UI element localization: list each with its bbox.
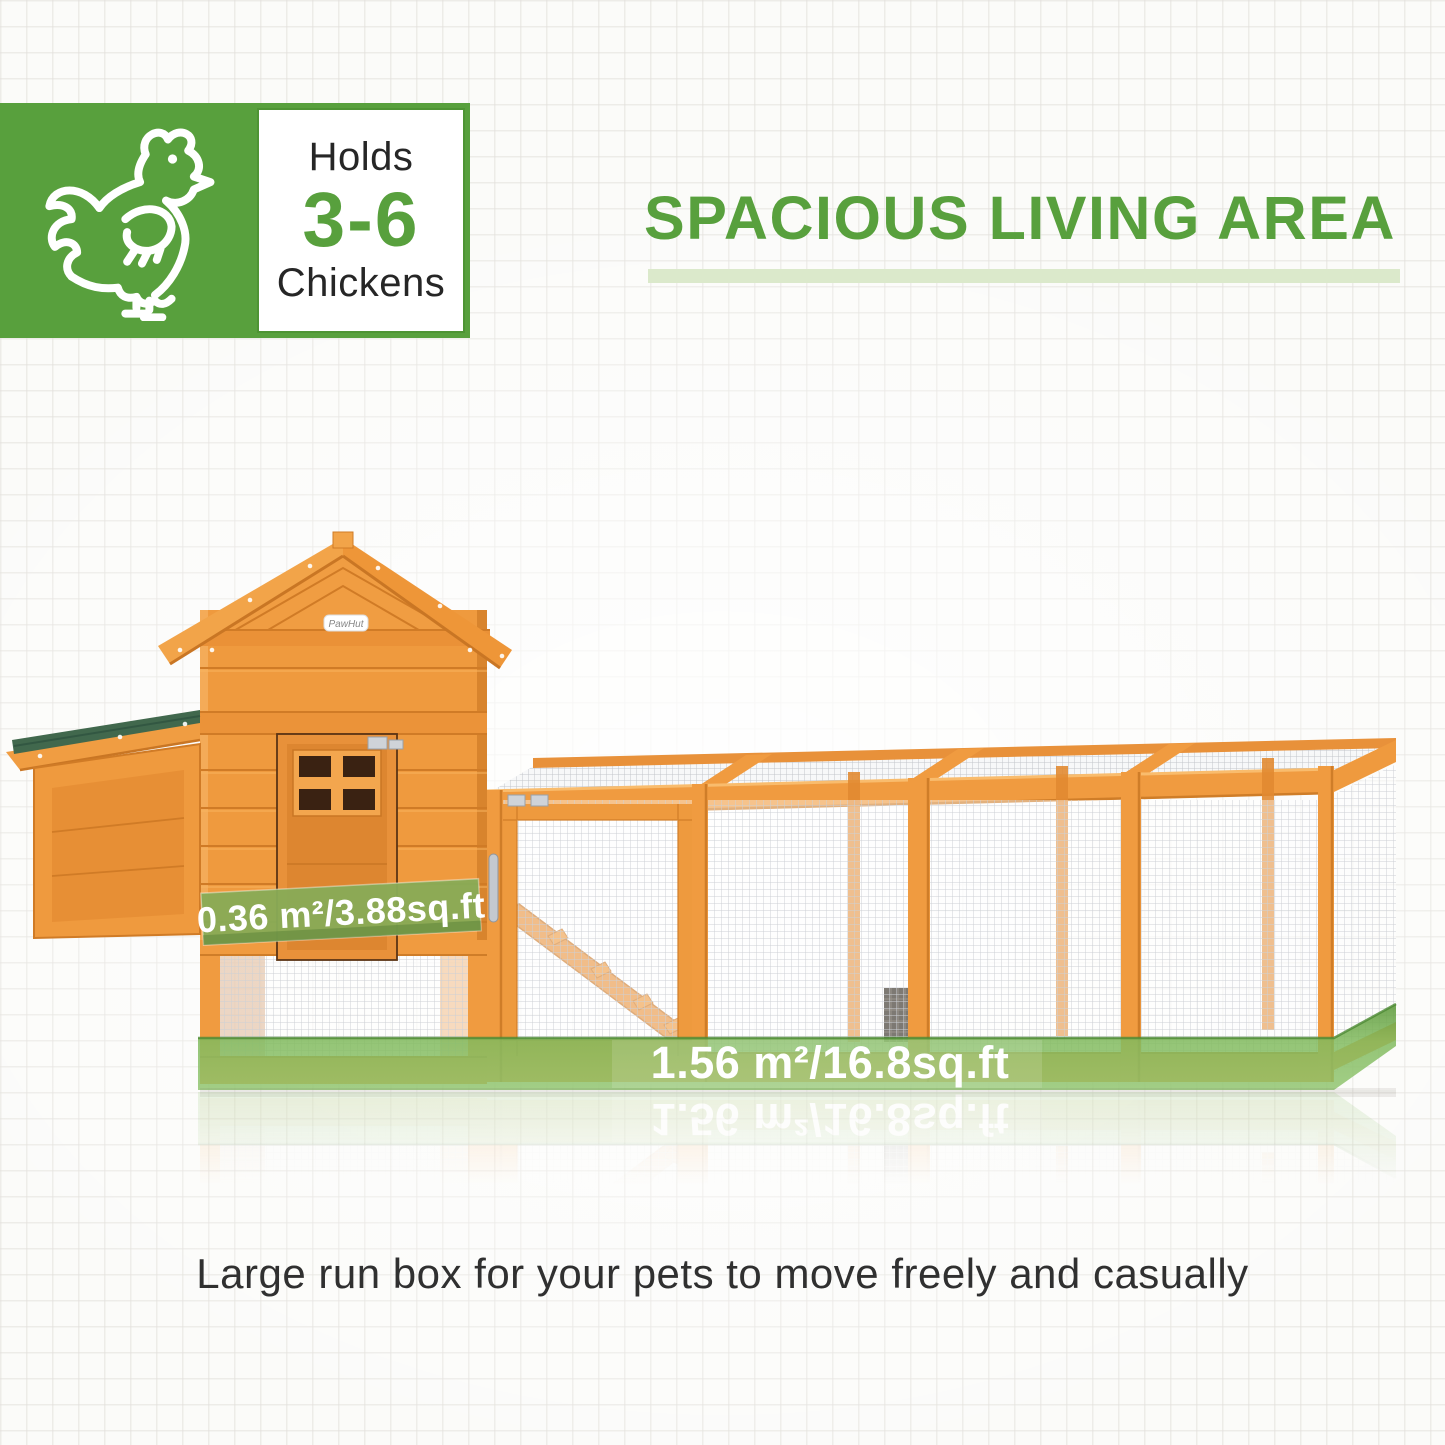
run-area-label: 1.56 m²/16.8sq.ft: [651, 1037, 1010, 1088]
door-window: [293, 750, 381, 816]
nest-box: [6, 710, 200, 938]
door-latch-icon: [368, 737, 387, 749]
chicken-run: [487, 738, 1396, 1082]
product-infographic: Holds 3-6 Chickens SPACIOUS LIVING AREA: [0, 0, 1445, 1445]
caption: Large run box for your pets to move free…: [0, 1250, 1445, 1298]
run-door-hinge-icon: [531, 795, 548, 806]
coop-illustration: PawHut: [0, 0, 1445, 1445]
chicken-coop-house: PawHut: [6, 532, 512, 1084]
brand-label: PawHut: [324, 615, 368, 631]
run-door-handle: [489, 854, 498, 922]
door-latch-icon: [389, 740, 403, 749]
brand-logo-text: PawHut: [328, 619, 364, 630]
run-door-hinge-icon: [508, 795, 525, 806]
